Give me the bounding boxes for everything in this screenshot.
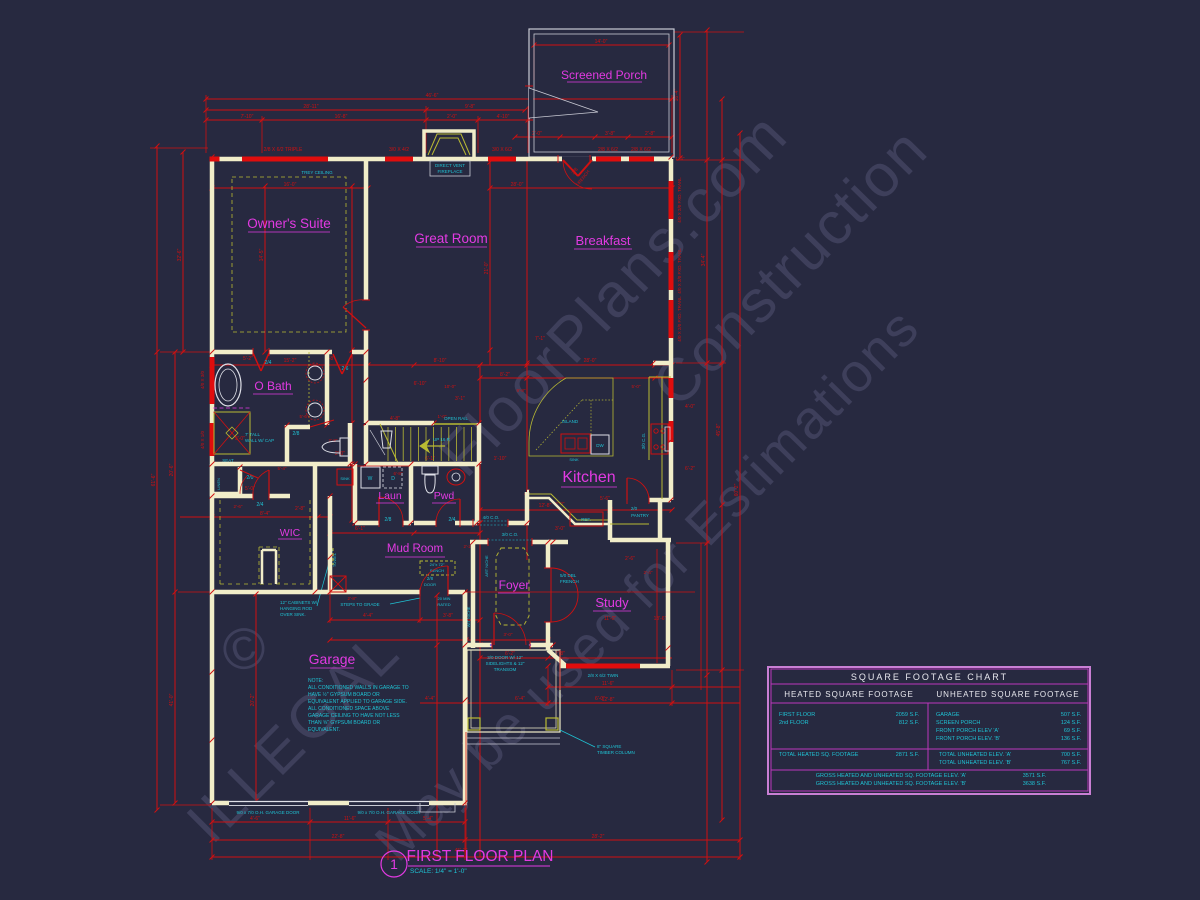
svg-text:2'-8": 2'-8" bbox=[295, 506, 305, 512]
svg-text:7'-10": 7'-10" bbox=[241, 114, 254, 120]
svg-text:LINEN: LINEN bbox=[216, 478, 221, 490]
svg-text:2'-0": 2'-0" bbox=[532, 131, 542, 137]
svg-text:SCREEN PORCH: SCREEN PORCH bbox=[936, 720, 980, 726]
svg-text:SCALE: 1/4" = 1'-0": SCALE: 1/4" = 1'-0" bbox=[410, 868, 467, 875]
svg-text:6'-10": 6'-10" bbox=[414, 381, 427, 387]
svg-text:2/8 X 6/2 TRIPLE: 2/8 X 6/2 TRIPLE bbox=[264, 147, 303, 153]
svg-text:4'-6": 4'-6" bbox=[250, 816, 260, 822]
svg-text:5'-2": 5'-2" bbox=[243, 356, 253, 362]
svg-text:700 S.F.: 700 S.F. bbox=[1061, 752, 1082, 758]
svg-text:HANGING ROD: HANGING ROD bbox=[280, 606, 313, 611]
svg-text:767 S.F.: 767 S.F. bbox=[1061, 760, 1082, 766]
svg-text:11'-0": 11'-0" bbox=[604, 616, 617, 622]
svg-text:6'-4": 6'-4" bbox=[515, 696, 525, 702]
svg-text:4'-4": 4'-4" bbox=[363, 613, 373, 619]
svg-text:DOOR: DOOR bbox=[424, 582, 436, 587]
svg-text:2/8 X 6/2 TWIN: 2/8 X 6/2 TWIN bbox=[588, 673, 619, 678]
svg-text:2/8: 2/8 bbox=[427, 576, 434, 581]
svg-text:69 S.F.: 69 S.F. bbox=[1064, 728, 1082, 734]
svg-text:2'-4": 2'-4" bbox=[644, 570, 653, 575]
svg-text:5'-0": 5'-0" bbox=[632, 384, 641, 389]
svg-text:ALL CONDITIONED SPACE ABOVE: ALL CONDITIONED SPACE ABOVE bbox=[308, 706, 390, 712]
svg-text:1'-10": 1'-10" bbox=[494, 456, 507, 462]
svg-text:812 S.F.: 812 S.F. bbox=[899, 720, 920, 726]
svg-text:Screened Porch: Screened Porch bbox=[561, 68, 647, 82]
svg-text:7'-1": 7'-1" bbox=[535, 336, 545, 342]
svg-text:TREY CEILING: TREY CEILING bbox=[301, 170, 333, 175]
svg-text:28'-0": 28'-0" bbox=[511, 182, 524, 188]
svg-text:TOTAL UNHEATED ELEV. 'B': TOTAL UNHEATED ELEV. 'B' bbox=[939, 760, 1011, 766]
svg-text:FRENCH: FRENCH bbox=[560, 579, 579, 584]
svg-text:3'-0": 3'-0" bbox=[235, 436, 245, 442]
svg-text:Garage: Garage bbox=[309, 651, 356, 667]
svg-text:3/0 C.O.: 3/0 C.O. bbox=[502, 532, 519, 537]
svg-text:2'-6": 2'-6" bbox=[234, 504, 243, 509]
svg-text:3'-8": 3'-8" bbox=[605, 131, 615, 137]
svg-text:UP 16 R: UP 16 R bbox=[433, 437, 451, 442]
svg-text:WALL W/ CAP: WALL W/ CAP bbox=[245, 438, 274, 443]
svg-text:SINK: SINK bbox=[340, 476, 350, 481]
svg-text:3571 S.F.: 3571 S.F. bbox=[1023, 773, 1047, 779]
svg-text:32'-6": 32'-6" bbox=[177, 248, 183, 261]
svg-text:ISLAND: ISLAND bbox=[562, 419, 579, 424]
svg-text:13'-6": 13'-6" bbox=[654, 616, 667, 622]
svg-text:REF.: REF. bbox=[581, 517, 591, 522]
svg-text:4/0 X 2/0 FXD. TRANL: 4/0 X 2/0 FXD. TRANL bbox=[677, 177, 682, 223]
svg-text:3/0 X 4/2: 3/0 X 4/2 bbox=[389, 147, 409, 153]
svg-text:Kitchen: Kitchen bbox=[562, 469, 615, 486]
svg-text:3/0 C.G.: 3/0 C.G. bbox=[641, 433, 646, 450]
svg-text:21'-0": 21'-0" bbox=[484, 261, 490, 274]
svg-text:2'-8": 2'-8" bbox=[348, 596, 357, 601]
svg-text:28'-2": 28'-2" bbox=[592, 834, 605, 840]
svg-text:11'-6": 11'-6" bbox=[602, 681, 615, 687]
svg-text:9/0 x 7/0 O.H. GARAGE DOOR: 9/0 x 7/0 O.H. GARAGE DOOR bbox=[357, 810, 421, 815]
svg-text:FIRST FLOOR PLAN: FIRST FLOOR PLAN bbox=[407, 848, 554, 865]
svg-text:4/0 X 1/0: 4/0 X 1/0 bbox=[200, 430, 205, 449]
svg-text:TIMBER COLUMN: TIMBER COLUMN bbox=[597, 750, 635, 755]
svg-text:TOTAL HEATED SQ. FOOTAGE: TOTAL HEATED SQ. FOOTAGE bbox=[779, 752, 859, 758]
svg-text:1'-4": 1'-4" bbox=[676, 156, 685, 161]
svg-text:UNHEATED SQUARE FOOTAGE: UNHEATED SQUARE FOOTAGE bbox=[936, 690, 1079, 699]
svg-text:3'-0": 3'-0" bbox=[555, 526, 565, 532]
svg-text:16'-4": 16'-4" bbox=[674, 88, 680, 101]
svg-text:45'-8": 45'-8" bbox=[716, 423, 722, 436]
svg-text:12" CABINETS W/: 12" CABINETS W/ bbox=[280, 600, 318, 605]
svg-text:14'-5": 14'-5" bbox=[259, 248, 265, 261]
svg-text:O Bath: O Bath bbox=[254, 379, 291, 393]
svg-text:EQUIVALENT APPLIED TO GARAGE S: EQUIVALENT APPLIED TO GARAGE SIDE. bbox=[308, 699, 407, 705]
svg-text:2/8: 2/8 bbox=[293, 431, 300, 437]
svg-text:34'-4": 34'-4" bbox=[701, 253, 707, 266]
svg-text:20 MIN: 20 MIN bbox=[438, 596, 451, 601]
svg-text:4'-0": 4'-0" bbox=[685, 404, 695, 410]
svg-text:28'-0": 28'-0" bbox=[584, 358, 597, 364]
svg-text:OVER SINK.: OVER SINK. bbox=[280, 612, 306, 617]
svg-text:5'-4": 5'-4" bbox=[423, 816, 433, 822]
svg-text:4'-4": 4'-4" bbox=[425, 696, 435, 702]
svg-text:Study: Study bbox=[595, 595, 629, 610]
svg-text:GROSS HEATED AND UNHEATED SQ.: GROSS HEATED AND UNHEATED SQ. FOOTAGE EL… bbox=[816, 773, 966, 779]
svg-text:Pwd: Pwd bbox=[434, 490, 455, 502]
svg-text:3'-0": 3'-0" bbox=[504, 632, 513, 637]
svg-text:10'-0": 10'-0" bbox=[444, 384, 456, 389]
svg-text:DIRECT VENT: DIRECT VENT bbox=[435, 163, 465, 168]
svg-text:EQUIVALENT.: EQUIVALENT. bbox=[308, 727, 340, 733]
svg-text:2'-6": 2'-6" bbox=[625, 556, 635, 562]
svg-text:2059 S.F.: 2059 S.F. bbox=[896, 712, 920, 718]
svg-text:3638 S.F.: 3638 S.F. bbox=[1023, 781, 1047, 787]
svg-text:Owner's Suite: Owner's Suite bbox=[247, 216, 331, 231]
svg-text:22'-8": 22'-8" bbox=[332, 834, 345, 840]
svg-text:2/8: 2/8 bbox=[385, 517, 392, 523]
svg-text:RATED: RATED bbox=[437, 602, 450, 607]
svg-text:61'-6": 61'-6" bbox=[151, 473, 157, 486]
svg-text:STEPS TO GRADE: STEPS TO GRADE bbox=[340, 602, 379, 607]
svg-text:SIDELIGHTS & 12": SIDELIGHTS & 12" bbox=[486, 661, 525, 666]
svg-text:12'-8": 12'-8" bbox=[539, 503, 552, 509]
svg-text:4'-10": 4'-10" bbox=[497, 114, 510, 120]
svg-text:GROSS HEATED AND UNHEATED SQ.: GROSS HEATED AND UNHEATED SQ. FOOTAGE EL… bbox=[816, 781, 966, 787]
svg-text:OPEN RAIL: OPEN RAIL bbox=[444, 416, 469, 421]
svg-text:WIT NICHE: WIT NICHE bbox=[466, 606, 471, 627]
svg-text:GARAGE: GARAGE bbox=[936, 712, 960, 718]
svg-text:20'-2": 20'-2" bbox=[250, 693, 256, 706]
svg-text:ART NICHE: ART NICHE bbox=[484, 555, 489, 577]
svg-text:124 S.F.: 124 S.F. bbox=[1061, 720, 1082, 726]
svg-text:D: D bbox=[391, 476, 395, 482]
svg-text:7' TALL: 7' TALL bbox=[245, 432, 260, 437]
svg-text:SINK: SINK bbox=[569, 457, 579, 462]
svg-text:136 S.F.: 136 S.F. bbox=[1061, 736, 1082, 742]
svg-text:2/8 X 6/2: 2/8 X 6/2 bbox=[631, 147, 651, 153]
svg-text:2nd FLOOR: 2nd FLOOR bbox=[779, 720, 809, 726]
svg-text:2/4: 2/4 bbox=[265, 360, 272, 366]
svg-text:3/0 DOOR W/ 12": 3/0 DOOR W/ 12" bbox=[487, 655, 523, 660]
svg-text:4/0 X 2/0 FXD. TRANL: 4/0 X 2/0 FXD. TRANL bbox=[677, 296, 682, 342]
svg-text:2/0: 2/0 bbox=[631, 506, 638, 511]
svg-text:DW: DW bbox=[596, 443, 604, 448]
svg-text:3'-1": 3'-1" bbox=[455, 396, 465, 402]
svg-text:9'-8": 9'-8" bbox=[517, 388, 526, 393]
svg-text:507 S.F.: 507 S.F. bbox=[1061, 712, 1082, 718]
svg-text:3'-8": 3'-8" bbox=[443, 613, 453, 619]
svg-text:THAN ⅝" GYPSUM BOARD OR: THAN ⅝" GYPSUM BOARD OR bbox=[308, 720, 380, 726]
svg-text:41'-0": 41'-0" bbox=[169, 693, 175, 706]
svg-text:FIREPLACE: FIREPLACE bbox=[437, 169, 462, 174]
svg-text:FIRST FLOOR: FIRST FLOOR bbox=[779, 712, 815, 718]
svg-text:SQUARE FOOTAGE CHART: SQUARE FOOTAGE CHART bbox=[851, 672, 1008, 682]
svg-text:5'-4": 5'-4" bbox=[278, 466, 287, 471]
svg-text:4/0 C.O.: 4/0 C.O. bbox=[483, 515, 500, 520]
svg-text:TRANSOM: TRANSOM bbox=[494, 667, 517, 672]
svg-text:5'-6": 5'-6" bbox=[300, 414, 309, 419]
svg-text:Breakfast: Breakfast bbox=[576, 233, 631, 248]
svg-text:8'-10": 8'-10" bbox=[434, 358, 447, 364]
svg-text:16'-0": 16'-0" bbox=[284, 182, 297, 188]
svg-text:28'-11": 28'-11" bbox=[303, 104, 318, 110]
svg-text:FRONT PORCH ELEV. 'B': FRONT PORCH ELEV. 'B' bbox=[936, 736, 1000, 742]
svg-text:4/0 X 2/0 FXD. TRANL: 4/0 X 2/0 FXD. TRANL bbox=[677, 248, 682, 294]
svg-text:NOTE:: NOTE: bbox=[308, 678, 323, 684]
svg-text:HEATED SQUARE FOOTAGE: HEATED SQUARE FOOTAGE bbox=[784, 690, 914, 699]
svg-text:9/0 x 7/0 O.H. GARAGE DOOR: 9/0 x 7/0 O.H. GARAGE DOOR bbox=[236, 810, 300, 815]
svg-text:Foyer: Foyer bbox=[499, 578, 530, 592]
svg-text:6'-8": 6'-8" bbox=[394, 471, 403, 476]
svg-text:60'-2": 60'-2" bbox=[734, 483, 740, 496]
svg-text:3/0 X 6/2: 3/0 X 6/2 bbox=[492, 147, 512, 153]
svg-text:TOWEL: TOWEL bbox=[332, 552, 337, 567]
svg-text:11'-6": 11'-6" bbox=[344, 816, 357, 822]
svg-text:5/0 DBL: 5/0 DBL bbox=[560, 573, 577, 578]
svg-text:6'-2": 6'-2" bbox=[685, 466, 695, 472]
svg-text:1: 1 bbox=[390, 856, 398, 872]
svg-text:HAVE ½" GYPSUM BOARD OR: HAVE ½" GYPSUM BOARD OR bbox=[308, 691, 380, 698]
svg-text:4/0 X 3/0: 4/0 X 3/0 bbox=[200, 370, 205, 389]
svg-text:8" SQUARE: 8" SQUARE bbox=[597, 744, 621, 749]
svg-text:14'-0": 14'-0" bbox=[595, 39, 608, 45]
svg-text:2/8 X 6/2: 2/8 X 6/2 bbox=[598, 147, 618, 153]
svg-text:2871 S.F.: 2871 S.F. bbox=[896, 752, 920, 758]
svg-text:W: W bbox=[368, 476, 373, 482]
svg-text:2/4: 2/4 bbox=[257, 502, 264, 508]
svg-text:PANTRY: PANTRY bbox=[631, 513, 649, 518]
svg-text:2'-8": 2'-8" bbox=[645, 131, 655, 137]
svg-text:2'-0": 2'-0" bbox=[447, 114, 457, 120]
svg-text:8'-2": 8'-2" bbox=[500, 372, 510, 378]
svg-text:15'-2": 15'-2" bbox=[284, 358, 297, 364]
svg-text:16'-8": 16'-8" bbox=[335, 114, 348, 120]
svg-text:6'-0": 6'-0" bbox=[595, 696, 605, 702]
svg-text:Great Room: Great Room bbox=[414, 231, 488, 246]
svg-text:ALL CONDITIONED WALLS IN GARAG: ALL CONDITIONED WALLS IN GARAGE TO bbox=[308, 685, 409, 691]
svg-text:9'-8": 9'-8" bbox=[465, 104, 475, 110]
svg-text:6'-1": 6'-1" bbox=[355, 526, 365, 532]
svg-text:FRONT PORCH ELEV 'A': FRONT PORCH ELEV 'A' bbox=[936, 728, 999, 734]
svg-text:TOTAL UNHEATED ELEV. 'A': TOTAL UNHEATED ELEV. 'A' bbox=[939, 752, 1011, 758]
svg-text:Mud Room: Mud Room bbox=[387, 543, 443, 555]
svg-text:20'-6": 20'-6" bbox=[169, 463, 175, 476]
svg-text:WIC: WIC bbox=[280, 527, 301, 539]
svg-text:GARAGE CEILING TO HAVE NOT LES: GARAGE CEILING TO HAVE NOT LESS bbox=[308, 713, 400, 719]
svg-text:8'-4": 8'-4" bbox=[260, 511, 270, 517]
svg-text:Laun: Laun bbox=[378, 490, 402, 502]
svg-text:2/4: 2/4 bbox=[449, 517, 456, 523]
svg-text:46'-6": 46'-6" bbox=[426, 93, 439, 99]
